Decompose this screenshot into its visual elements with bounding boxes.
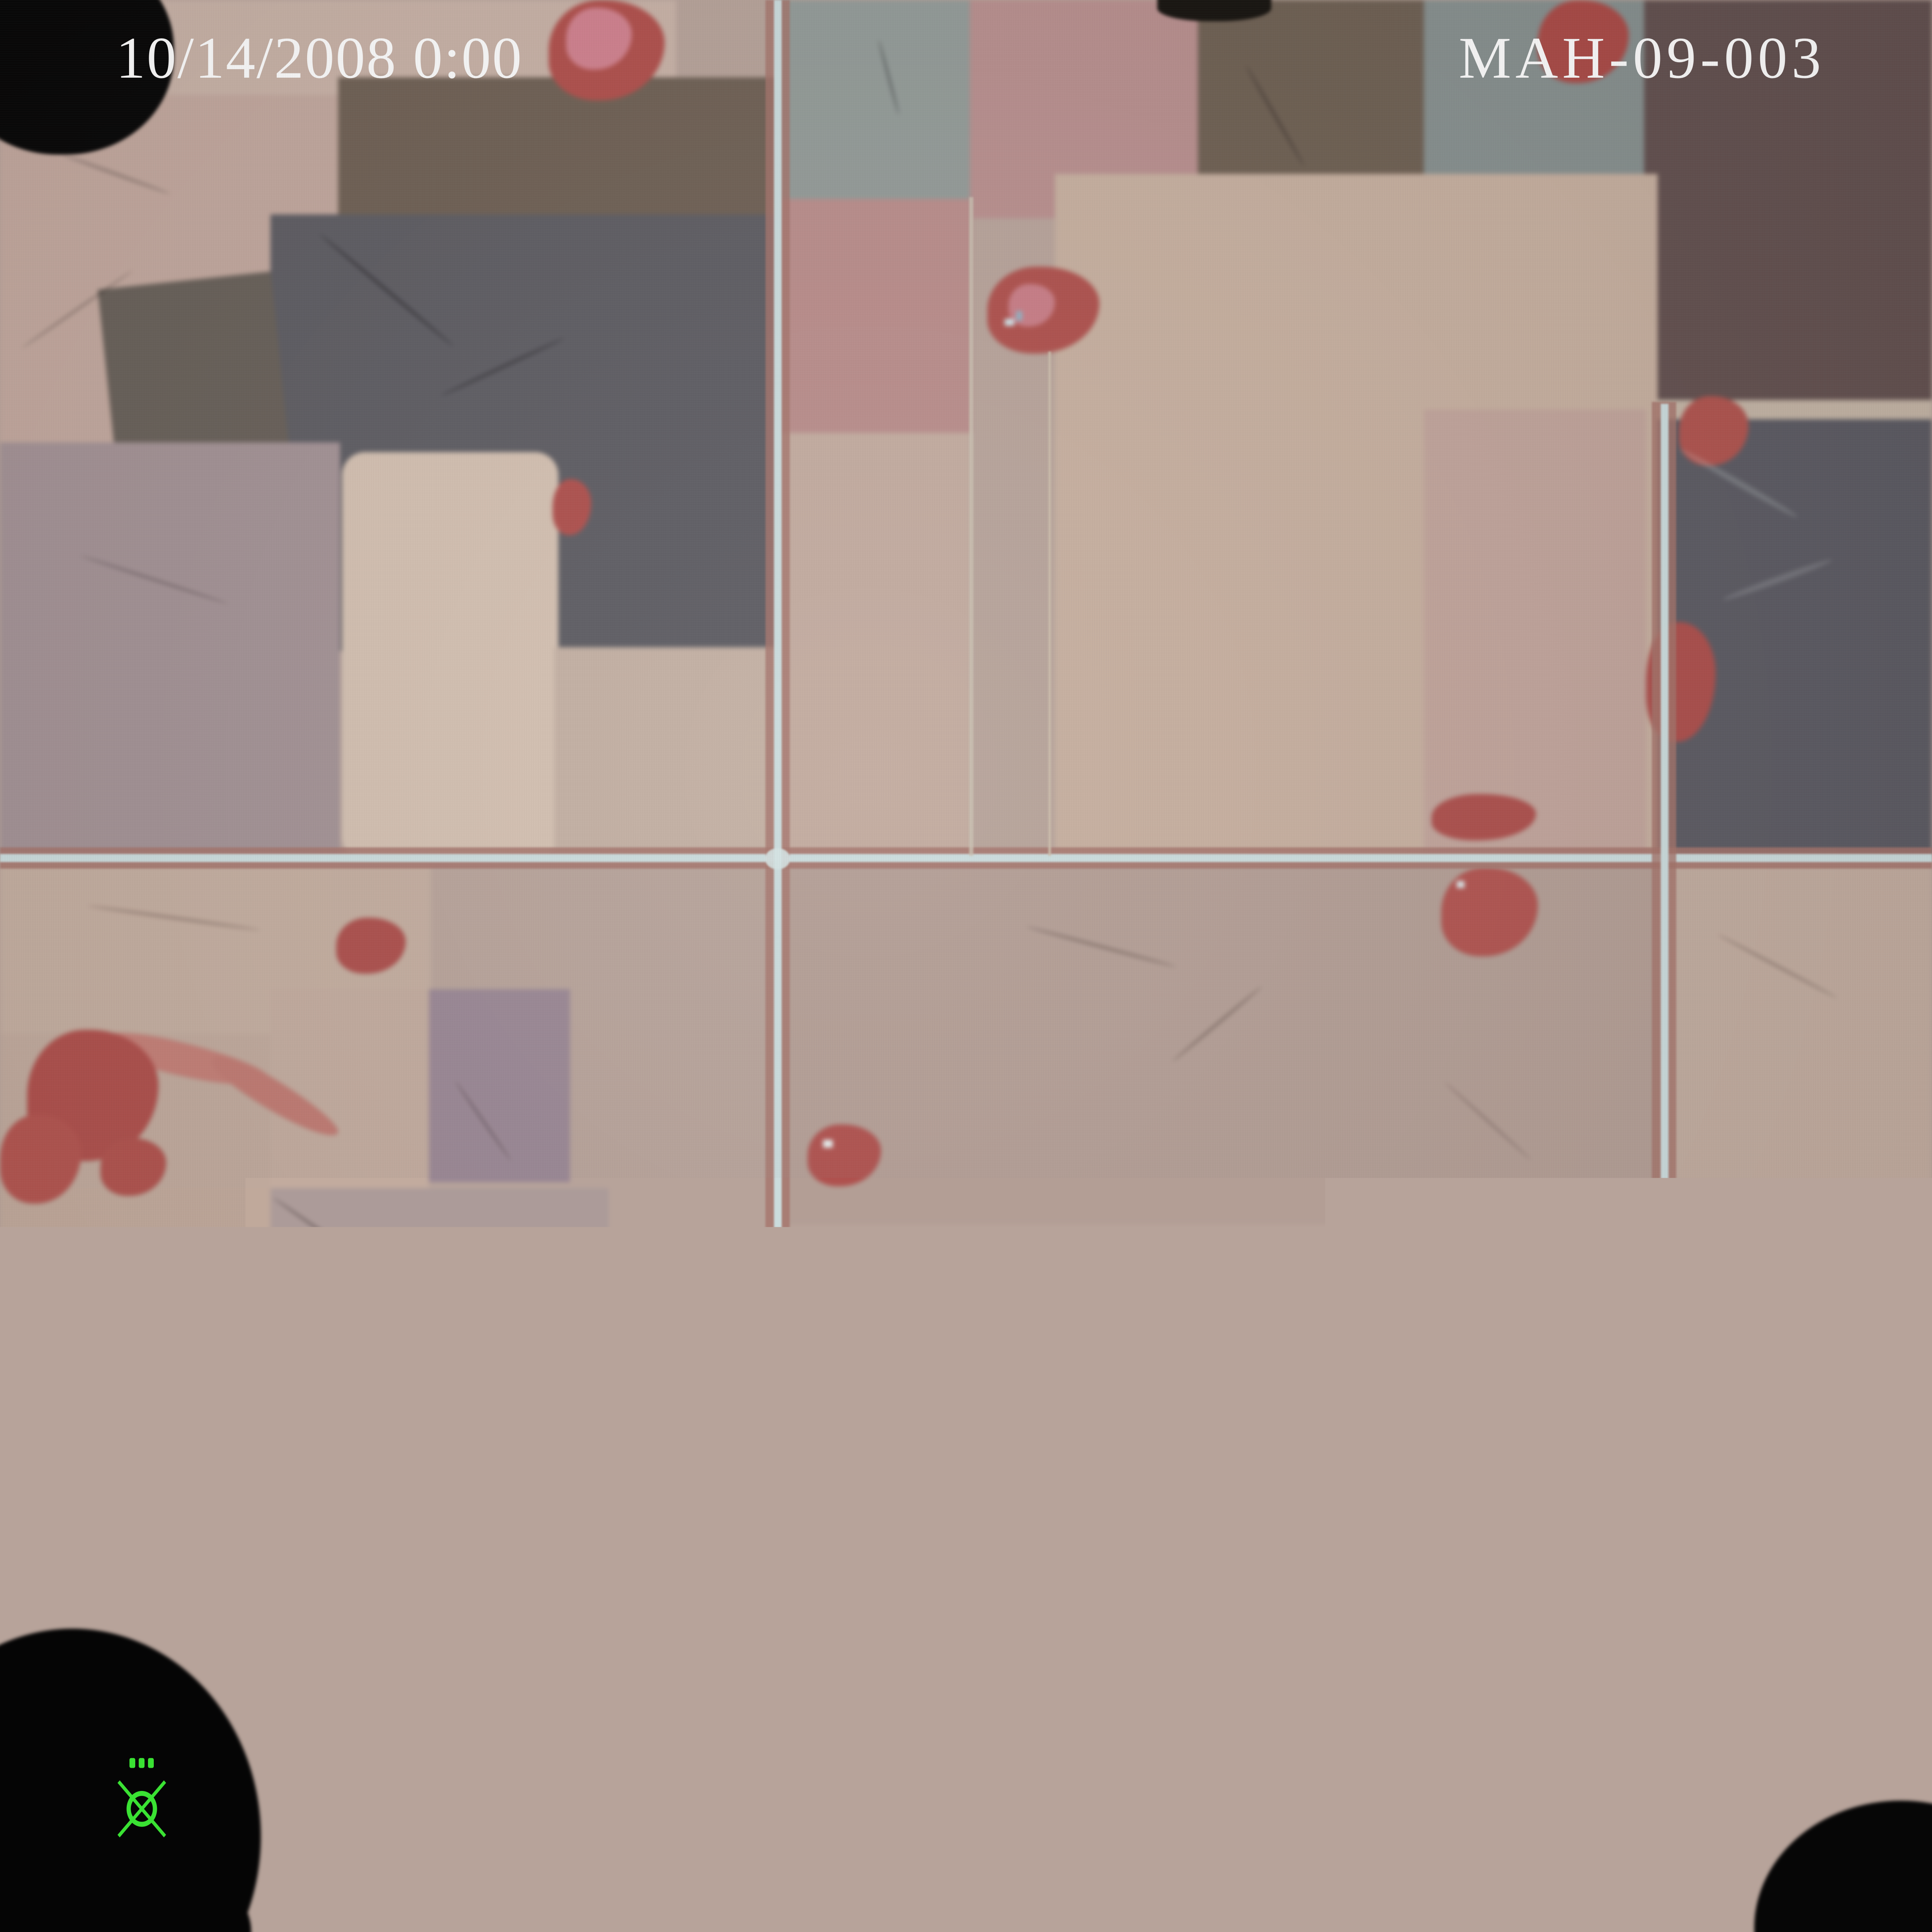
aerial-photo-viewer: 10/14/2008 0:00 MAH-09-003 (0, 0, 1932, 1932)
photo-frame-notch-top (1157, 0, 1271, 21)
fiducial-crosshair-bottom-right-icon (1862, 1835, 1932, 1932)
fiducial-x-circle-bottom-left-icon (103, 1756, 180, 1847)
timestamp-overlay: 10/14/2008 0:00 (116, 20, 523, 96)
photo-frame-layer (0, 0, 1932, 1932)
frame-id-overlay: MAH-09-003 (1459, 20, 1825, 96)
fiducial-crosshair-top-left-icon (0, 0, 68, 48)
